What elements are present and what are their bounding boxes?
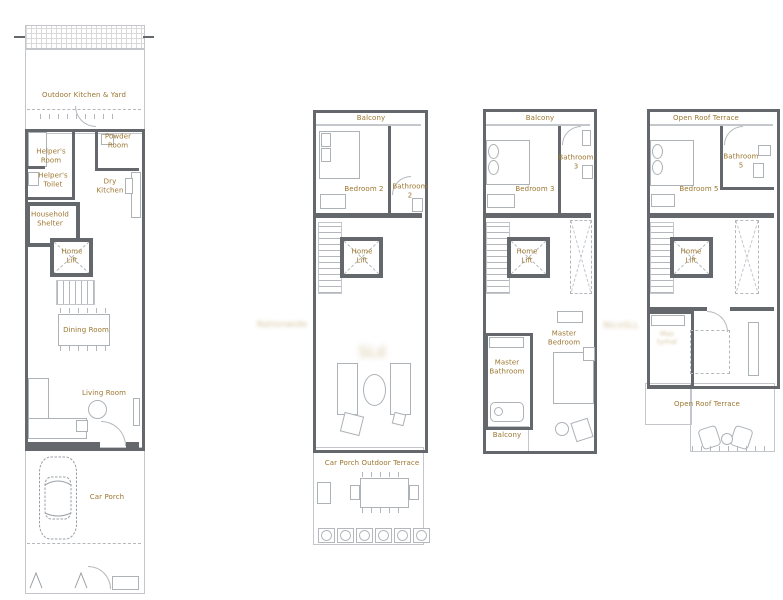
stairs-second-storey xyxy=(318,222,342,294)
room-label-dining-room: Dining Room xyxy=(63,326,109,335)
powder-room-wall-v xyxy=(95,132,98,170)
terrace-chair-left xyxy=(350,485,360,500)
dry-kitchen-sink xyxy=(125,178,133,194)
dimension-tick-right xyxy=(143,36,154,38)
gate-line-dashed xyxy=(27,543,141,544)
dining-chairs-top xyxy=(60,308,108,313)
second-storey-mid-wall xyxy=(313,213,422,218)
room-label-balcony-3-front: Balcony xyxy=(526,114,554,123)
room-label-outdoor-kitchen-yard: Outdoor Kitchen & Yard xyxy=(42,91,126,100)
room-label-master-bathroom: Master Bathroom xyxy=(489,359,524,376)
room-label-bathroom-2: Bathroom 2 xyxy=(392,183,427,200)
attic-bed-dashed xyxy=(690,330,730,374)
powder-room-wall-h xyxy=(95,168,139,171)
terrace-chairs-top xyxy=(362,472,406,477)
dining-chairs-bottom xyxy=(60,346,108,351)
sofa-left-2f xyxy=(337,363,358,415)
bathroom3-wall-v xyxy=(558,126,561,215)
room-label-open-roof-terrace-front: Open Roof Terrace xyxy=(673,114,739,123)
room-label-household-shelter: Household Shelter xyxy=(31,211,69,228)
bathtub xyxy=(490,402,524,422)
attic-mid-wall xyxy=(647,213,774,218)
terrace-dining-table xyxy=(360,478,409,508)
planter-icon xyxy=(375,528,392,543)
watermark: NicoSLL xyxy=(603,321,638,331)
helpers-toilet-wall-h2 xyxy=(25,197,75,200)
trellis-roof-hatch xyxy=(25,25,145,50)
bathroom2-wall-v xyxy=(388,126,391,176)
watermark: Mas tymal xyxy=(657,330,677,346)
bathroom2-wc xyxy=(412,198,423,212)
side-table xyxy=(76,420,88,432)
bedroom2-desk xyxy=(320,194,346,209)
living-porch-wall-left xyxy=(25,442,100,448)
room-label-bedroom-5: Bedroom 5 xyxy=(679,185,718,194)
master-dresser xyxy=(557,311,583,323)
planter-icon xyxy=(394,528,411,543)
void-well-3 xyxy=(570,220,592,294)
bed2-pillow-2 xyxy=(321,148,331,162)
room-label-bedroom-2: Bedroom 2 xyxy=(344,185,383,194)
bed3-pillow-1 xyxy=(488,144,499,159)
planter-icon xyxy=(337,528,354,543)
tv-console xyxy=(133,398,140,426)
void-x-icon xyxy=(736,221,758,293)
room-label-balcony-2: Balcony xyxy=(357,114,385,123)
bedroom3-bench xyxy=(487,194,515,208)
dimension-tick-left xyxy=(14,36,25,38)
room-label-balcony-3-rear: Balcony xyxy=(493,431,521,440)
master-bedside-table xyxy=(583,347,595,361)
terrace-round-table xyxy=(721,433,733,445)
room-label-dry-kitchen: Dry Kitchen xyxy=(96,178,123,195)
room-label-car-porch: Car Porch xyxy=(90,493,124,502)
planter-box-left xyxy=(317,482,331,504)
stairs-first-storey xyxy=(56,280,95,305)
armchair-round xyxy=(88,400,107,419)
gate-posts-icon xyxy=(27,570,97,590)
attic-room-wall-left xyxy=(647,307,707,311)
third-storey-mid-wall xyxy=(483,213,591,218)
watermark: Nationwide xyxy=(257,320,308,330)
room-label-bathroom-5: Bathroom 5 xyxy=(723,153,758,170)
room-label-home-lift-1: Home Lift xyxy=(61,248,82,265)
room-label-car-porch-outdoor-terrace: Car Porch Outdoor Terrace xyxy=(325,459,420,468)
helpers-room-wall-v xyxy=(72,132,75,200)
floor-plan-sheet: Outdoor Kitchen & Yard Powder Room Helpe… xyxy=(0,0,783,600)
living-porch-wall-right xyxy=(126,442,139,448)
planter-icon xyxy=(356,528,373,543)
watermark: SLd xyxy=(358,343,385,361)
bathtub-drain xyxy=(494,407,503,416)
bathroom2-wall-v2 xyxy=(388,173,391,215)
room-label-powder-room: Powder Room xyxy=(105,133,131,150)
room-label-home-lift-4: Home Lift xyxy=(680,248,701,265)
bed5-pillow-2 xyxy=(652,160,663,175)
room-label-home-lift-2: Home Lift xyxy=(351,248,372,265)
attic-vanity xyxy=(651,315,685,326)
bed5-pillow-1 xyxy=(652,144,663,159)
room-label-helpers-toilet: Helper's Toilet xyxy=(38,172,68,189)
car-icon xyxy=(38,455,78,541)
room-label-bathroom-3: Bathroom 3 xyxy=(558,154,593,171)
planter-icon xyxy=(318,528,335,543)
helpers-toilet-wall-h1 xyxy=(25,166,45,169)
room-label-open-roof-terrace-rear: Open Roof Terrace xyxy=(674,400,740,409)
coffee-table-oval xyxy=(363,374,386,406)
attic-room-wall-right xyxy=(730,307,774,311)
room-label-bedroom-3: Bedroom 3 xyxy=(515,185,554,194)
void-well-4 xyxy=(735,220,759,294)
round-side-table-3 xyxy=(555,422,569,436)
room-label-home-lift-3: Home Lift xyxy=(516,248,537,265)
room-label-living-room: Living Room xyxy=(82,389,126,398)
void-x-icon xyxy=(571,221,591,293)
bed3-pillow-2 xyxy=(488,160,499,175)
terrace-chairs-bottom xyxy=(362,508,406,513)
bedroom5-bench xyxy=(651,194,675,207)
sofa-right-2f xyxy=(390,363,411,415)
planter-icon xyxy=(413,528,430,543)
bathroom5-basin xyxy=(758,145,771,156)
terrace-chair-right xyxy=(409,485,419,500)
master-vanity xyxy=(489,337,524,348)
room-label-helpers-room: Helper's Room xyxy=(36,148,66,165)
room-label-master-bedroom: Master Bedroom xyxy=(548,330,580,347)
terrace-edge-ticks xyxy=(692,446,771,451)
bathroom5-wall-h xyxy=(720,187,774,190)
planter-row xyxy=(318,528,432,547)
mailbox-planter xyxy=(112,576,139,590)
bathroom3-shower xyxy=(582,130,591,146)
bed2-pillow-1 xyxy=(321,133,331,147)
attic-wardrobe xyxy=(748,322,759,376)
